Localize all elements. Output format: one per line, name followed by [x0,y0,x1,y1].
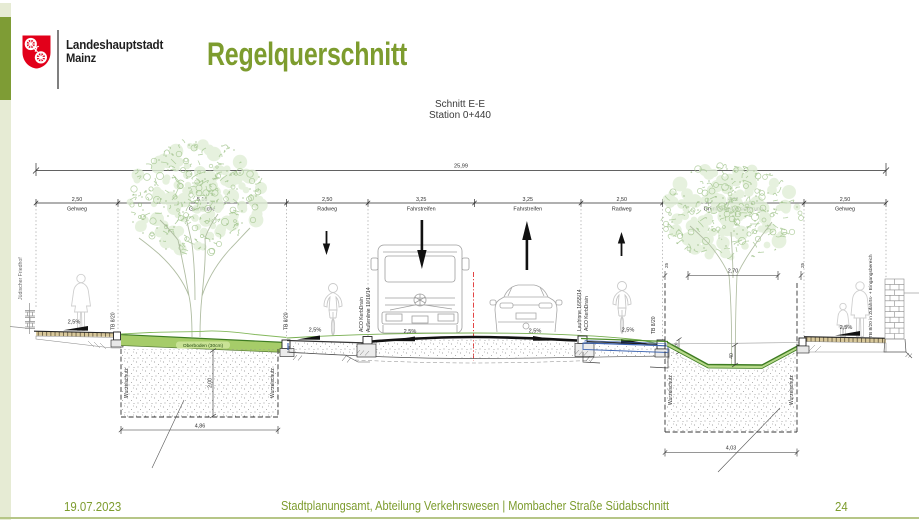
svg-text:TB 8/20: TB 8/20 [651,316,657,334]
svg-text:3,25: 3,25 [416,197,427,203]
svg-text:2,5%: 2,5% [840,325,853,331]
svg-text:25: 25 [800,262,805,268]
svg-text:Wurzelschutz: Wurzelschutz [270,368,276,398]
svg-text:40: 40 [729,353,735,359]
svg-text:Gehweg: Gehweg [835,207,855,213]
svg-text:2,50: 2,50 [72,197,83,203]
svg-text:2,5%: 2,5% [529,329,542,335]
svg-text:4,03: 4,03 [726,446,737,452]
svg-text:2,5%: 2,5% [68,320,81,326]
svg-text:2,50: 2,50 [322,197,333,203]
svg-text:3,25: 3,25 [523,197,534,203]
svg-text:ACO KerbDrain: ACO KerbDrain [584,296,590,331]
svg-text:Wurzelschutz: Wurzelschutz [668,375,674,405]
svg-text:Außenlinie 10/16/14: Außenlinie 10/16/14 [366,287,372,332]
svg-text:2,5%: 2,5% [404,329,417,335]
svg-text:Jüdischer Friedhof: Jüdischer Friedhof [18,257,24,300]
svg-text:TB 8/20 in Zufahrts- + Eingang: TB 8/20 in Zufahrts- + Eingangsbereich [868,254,874,338]
svg-text:2,00: 2,00 [208,378,214,388]
svg-text:Radweg: Radweg [317,207,337,213]
svg-text:Radweg: Radweg [612,207,632,213]
svg-text:Gehweg: Gehweg [67,207,87,213]
svg-text:TB 8/20: TB 8/20 [111,312,117,330]
svg-text:2,70: 2,70 [728,269,739,275]
svg-text:Fahrstreifen: Fahrstreifen [513,207,542,213]
svg-text:2,5%: 2,5% [309,328,322,334]
svg-text:Wurzelschutz: Wurzelschutz [124,368,130,398]
svg-text:Laufrinne 16/55/14: Laufrinne 16/55/14 [577,289,583,331]
svg-text:25: 25 [664,262,669,268]
svg-text:2,50: 2,50 [617,197,628,203]
svg-text:ACO KerbDrain: ACO KerbDrain [359,297,365,332]
svg-text:Fahrstreifen: Fahrstreifen [407,207,436,213]
svg-text:25,99: 25,99 [454,164,468,170]
svg-text:2,50: 2,50 [840,197,851,203]
svg-text:4,86: 4,86 [195,424,206,430]
svg-text:2,5%: 2,5% [622,328,635,334]
svg-text:TB 8/20: TB 8/20 [284,312,290,330]
svg-text:Wurzelschutz: Wurzelschutz [789,375,795,405]
svg-text:Oberboden (30cm): Oberboden (30cm) [183,343,224,349]
